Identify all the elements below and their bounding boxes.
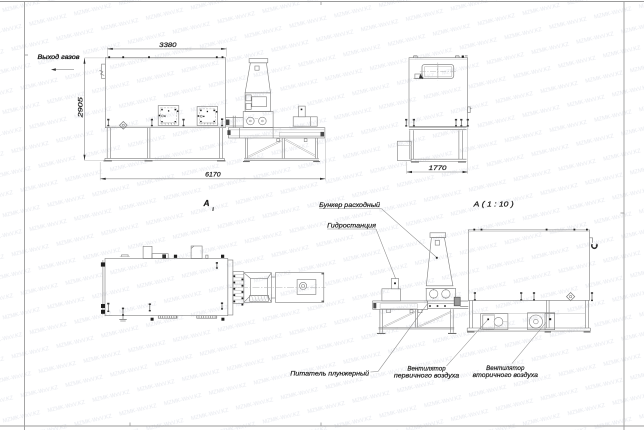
svg-text:вторичного воздуха: вторичного воздуха [473, 371, 539, 379]
svg-text:1770: 1770 [429, 165, 448, 172]
svg-text:А: А [202, 198, 209, 208]
svg-text:Бункер расходный: Бункер расходный [319, 201, 380, 209]
svg-text:А ( 1 : 10 ): А ( 1 : 10 ) [473, 200, 515, 209]
svg-text:Питатель плунжерный: Питатель плунжерный [290, 370, 369, 378]
svg-text:6170: 6170 [205, 172, 221, 179]
svg-text:2905: 2905 [77, 96, 84, 118]
svg-text:первичного воздуха: первичного воздуха [394, 372, 460, 380]
svg-text:3380: 3380 [159, 42, 177, 49]
svg-text:Гидростанция: Гидростанция [327, 222, 376, 230]
svg-text:Выход газов: Выход газов [38, 53, 81, 61]
